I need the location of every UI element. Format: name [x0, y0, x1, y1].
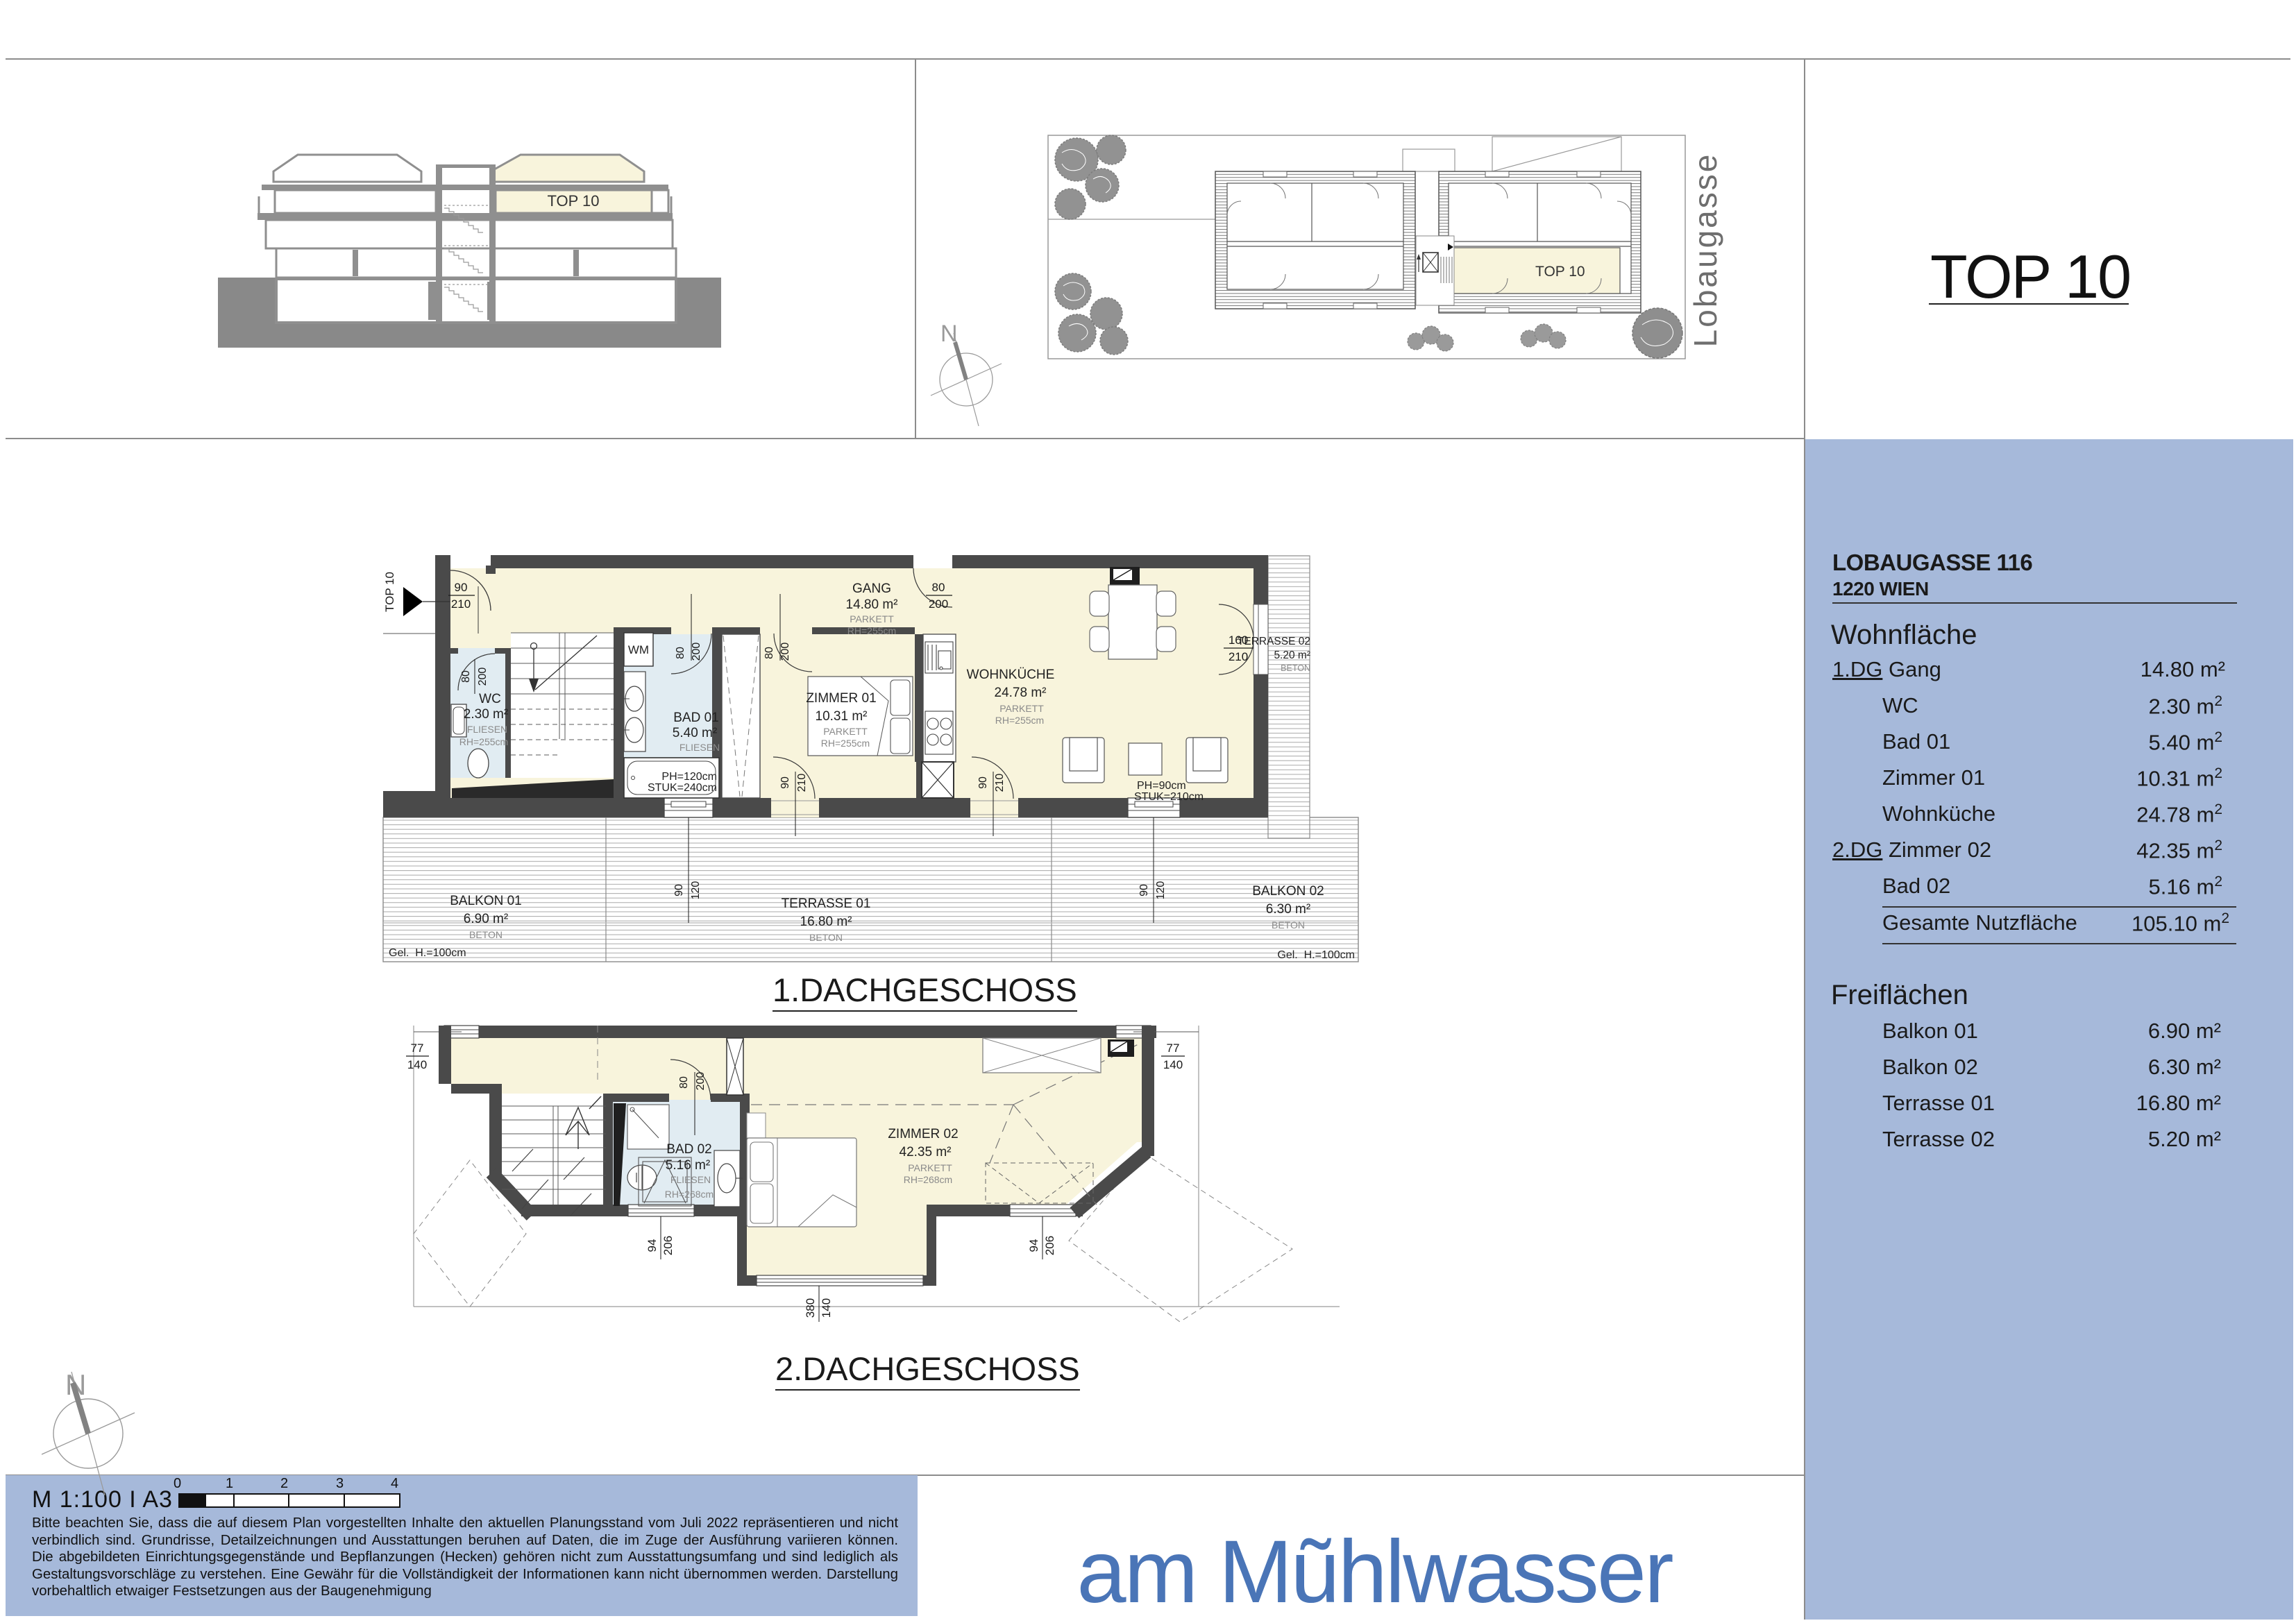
svg-text:TERRASSE 01: TERRASSE 01	[782, 897, 871, 911]
svg-text:WOHNKÜCHE: WOHNKÜCHE	[967, 668, 1055, 682]
svg-text:210: 210	[1229, 650, 1248, 663]
svg-text:TERRASSE 02: TERRASSE 02	[1238, 636, 1310, 647]
svg-text:80: 80	[675, 647, 686, 659]
svg-text:BAD 01: BAD 01	[673, 711, 718, 725]
svg-text:80: 80	[763, 647, 775, 659]
svg-text:90: 90	[673, 884, 685, 897]
svg-text:24.78 m²: 24.78 m²	[995, 686, 1047, 700]
svg-text:200: 200	[779, 643, 791, 661]
svg-text:5.40 m²: 5.40 m²	[673, 726, 717, 740]
svg-text:200: 200	[929, 597, 948, 611]
svg-text:140: 140	[1163, 1058, 1183, 1071]
svg-text:42.35 m²: 42.35 m²	[900, 1145, 952, 1159]
svg-text:ZIMMER 02: ZIMMER 02	[888, 1127, 958, 1141]
svg-text:140: 140	[820, 1298, 833, 1318]
svg-text:RH=255cm: RH=255cm	[995, 715, 1044, 726]
svg-text:GANG: GANG	[852, 581, 891, 596]
svg-text:RH=255cm: RH=255cm	[821, 738, 870, 749]
svg-text:6.90 m²: 6.90 m²	[464, 912, 508, 926]
svg-text:BALKON 02: BALKON 02	[1252, 884, 1324, 899]
svg-text:ZIMMER 01: ZIMMER 01	[806, 691, 876, 706]
svg-text:206: 206	[661, 1236, 675, 1255]
svg-text:BETON: BETON	[1272, 919, 1305, 931]
svg-text:200: 200	[477, 668, 489, 686]
svg-text:WC: WC	[479, 692, 501, 706]
svg-text:90: 90	[977, 776, 989, 789]
svg-text:Gel. H.=100cm: Gel. H.=100cm	[1277, 949, 1355, 961]
svg-text:PH=90cm: PH=90cm	[1137, 780, 1186, 792]
svg-text:94: 94	[1027, 1239, 1040, 1252]
svg-text:BALKON 01: BALKON 01	[450, 894, 522, 908]
svg-text:120: 120	[690, 881, 702, 900]
svg-text:PARKETT: PARKETT	[823, 726, 868, 737]
svg-text:STUK=240cm: STUK=240cm	[648, 782, 717, 794]
svg-text:16.80 m²: 16.80 m²	[800, 915, 852, 929]
svg-text:WM: WM	[628, 643, 649, 656]
svg-text:RH=268cm: RH=268cm	[904, 1174, 952, 1185]
svg-text:90: 90	[1138, 884, 1150, 897]
svg-text:6.30 m²: 6.30 m²	[1266, 902, 1310, 917]
svg-text:90: 90	[779, 776, 791, 789]
svg-text:200: 200	[695, 1072, 707, 1091]
svg-text:77: 77	[411, 1042, 424, 1055]
svg-text:140: 140	[407, 1058, 427, 1071]
svg-text:PH=120cm: PH=120cm	[661, 771, 717, 783]
svg-text:RH=268cm: RH=268cm	[665, 1189, 714, 1200]
svg-text:STUK=210cm: STUK=210cm	[1134, 791, 1204, 803]
svg-text:TOP 10: TOP 10	[383, 572, 396, 612]
svg-text:BETON: BETON	[1281, 663, 1310, 673]
svg-text:5.16 m²: 5.16 m²	[666, 1158, 710, 1173]
svg-text:PARKETT: PARKETT	[850, 613, 894, 624]
svg-text:BETON: BETON	[469, 929, 503, 940]
svg-text:PARKETT: PARKETT	[908, 1162, 952, 1173]
svg-text:FLIESEN: FLIESEN	[467, 724, 507, 735]
svg-text:FLIESEN: FLIESEN	[679, 742, 720, 753]
svg-text:200: 200	[691, 643, 702, 661]
svg-text:RH=255cm: RH=255cm	[459, 736, 508, 747]
svg-text:Lobaugasse: Lobaugasse	[1687, 153, 1723, 348]
svg-text:90: 90	[455, 581, 468, 594]
svg-text:FLIESEN: FLIESEN	[670, 1174, 711, 1185]
svg-text:206: 206	[1043, 1236, 1056, 1255]
svg-text:210: 210	[796, 774, 808, 792]
svg-text:380: 380	[804, 1298, 817, 1318]
svg-text:210: 210	[451, 597, 471, 611]
svg-text:5.20 m²: 5.20 m²	[1274, 649, 1310, 661]
svg-text:80: 80	[460, 670, 472, 683]
svg-text:TOP 10: TOP 10	[1535, 264, 1585, 280]
svg-text:14.80 m²: 14.80 m²	[846, 597, 898, 612]
svg-text:94: 94	[645, 1239, 659, 1252]
svg-text:BAD 02: BAD 02	[666, 1142, 711, 1157]
svg-text:BETON: BETON	[809, 932, 843, 943]
svg-text:10.31 m²: 10.31 m²	[816, 709, 868, 724]
svg-text:PARKETT: PARKETT	[999, 703, 1044, 714]
svg-text:77: 77	[1167, 1042, 1180, 1055]
svg-text:RH=255cm: RH=255cm	[847, 625, 896, 636]
svg-text:80: 80	[932, 581, 945, 594]
svg-text:80: 80	[678, 1076, 690, 1089]
svg-text:210: 210	[994, 774, 1006, 792]
svg-text:2.30 m²: 2.30 m²	[464, 707, 508, 722]
svg-text:Gel. H.=100cm: Gel. H.=100cm	[389, 947, 466, 959]
svg-text:TOP 10: TOP 10	[547, 192, 599, 210]
svg-text:120: 120	[1155, 881, 1167, 900]
